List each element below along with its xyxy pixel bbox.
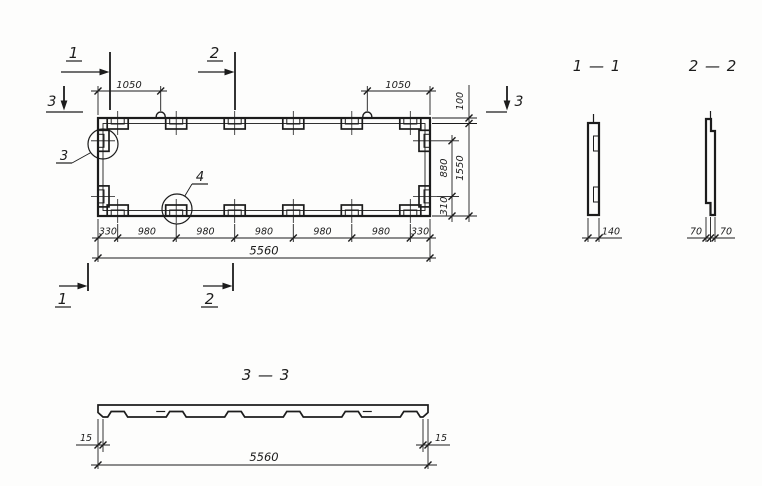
mounting-lug [224,111,245,135]
section-marker-label: 1 [58,290,69,308]
dimension-3-3: 15 15 5560 [76,419,450,469]
mounting-lug [400,199,421,223]
dim-5560-label: 5560 [249,244,278,258]
dim-980-label: 980 [138,227,156,238]
panel-outline [98,118,430,216]
section-marker-3-left: 3 [46,86,83,112]
mounting-lug [166,111,187,135]
section-title: 1 — 1 [573,57,622,75]
dim-980-label: 980 [255,227,273,238]
section-marker-label: 1 [69,44,80,62]
detail-label: 3 [60,149,68,164]
section-marker-3-right: 3 [486,86,523,112]
mounting-lugs [91,111,437,223]
mounting-lug [283,111,304,135]
dim-top-right-label: 1050 [385,80,410,91]
section-marker-label: 3 [515,94,524,110]
dim-right-880-label: 880 [439,158,450,177]
dim-right-310-label: 310 [439,196,450,215]
dim-70-left-label: 70 [690,227,702,238]
mounting-lug [166,199,187,223]
section-marker-label: 2 [205,290,216,308]
dim-980-label: 980 [372,227,390,238]
dimension-top: 1050 1050 [91,80,436,115]
plan-view: 1050 1050 100 880 310 1550 [46,44,523,308]
dim-70-right-label: 70 [720,227,732,238]
dimension-140: 140 [582,218,622,242]
section-view-1-1: 1 — 1 140 [573,57,622,242]
mounting-lug [341,111,362,135]
detail-label: 4 [196,170,204,185]
section-view-3-3: 3 — 3 15 15 5560 [76,366,450,469]
section-marker-1-top: 1 [61,44,110,110]
dimension-70-70: 70 70 [687,217,735,242]
dim-right-100-label: 100 [455,92,466,110]
section-marker-2-top: 2 [198,44,235,110]
section-marker-label: 2 [210,44,221,62]
mounting-lug [400,111,421,135]
section-title: 2 — 2 [689,57,738,75]
section-1-1-profile [588,114,599,215]
dimension-right: 100 880 310 1550 [432,85,477,222]
section-view-2-2: 2 — 2 70 70 [687,57,737,242]
technical-drawing: 1050 1050 100 880 310 1550 [0,0,762,486]
dim-15-right-label: 15 [435,433,447,444]
mounting-lug [224,199,245,223]
mounting-lug [341,199,362,223]
section-2-2-profile [706,111,715,215]
dim-330-right-label: 330 [411,227,429,238]
section-marker-label: 3 [48,94,57,110]
dim-330-left-label: 330 [99,227,117,238]
drawing-sheet: 1050 1050 100 880 310 1550 [0,0,762,486]
dim-980-label: 980 [196,227,214,238]
mounting-lug [107,199,128,223]
dim-top-left-label: 1050 [116,80,141,91]
section-marker-1-bottom: 1 [55,263,88,308]
dim-140-label: 140 [602,227,620,238]
mounting-lug [283,199,304,223]
section-3-3-profile [98,405,428,417]
dimension-bottom: 330 980 980 980 980 980 330 5560 [92,219,436,262]
section-marker-2-bottom: 2 [201,263,233,308]
section-title: 3 — 3 [242,366,291,384]
dim-15-left-label: 15 [80,433,92,444]
dim-5560-label: 5560 [249,450,278,464]
dim-right-1550-label: 1550 [455,155,466,180]
dim-980-label: 980 [313,227,331,238]
